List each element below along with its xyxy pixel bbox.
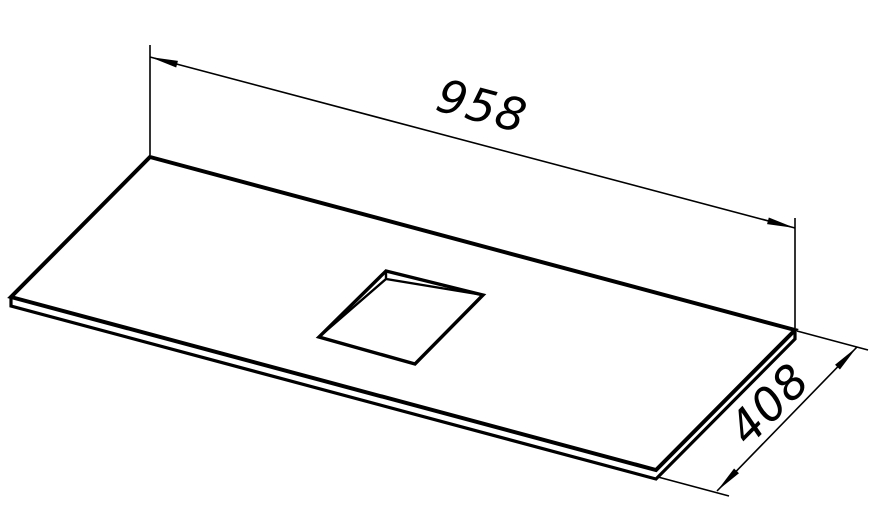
extension-line-depth-bottom <box>658 477 729 496</box>
extension-line-depth-top <box>797 331 868 350</box>
panel <box>11 157 795 479</box>
drawing-canvas: 958 408 <box>0 0 880 527</box>
